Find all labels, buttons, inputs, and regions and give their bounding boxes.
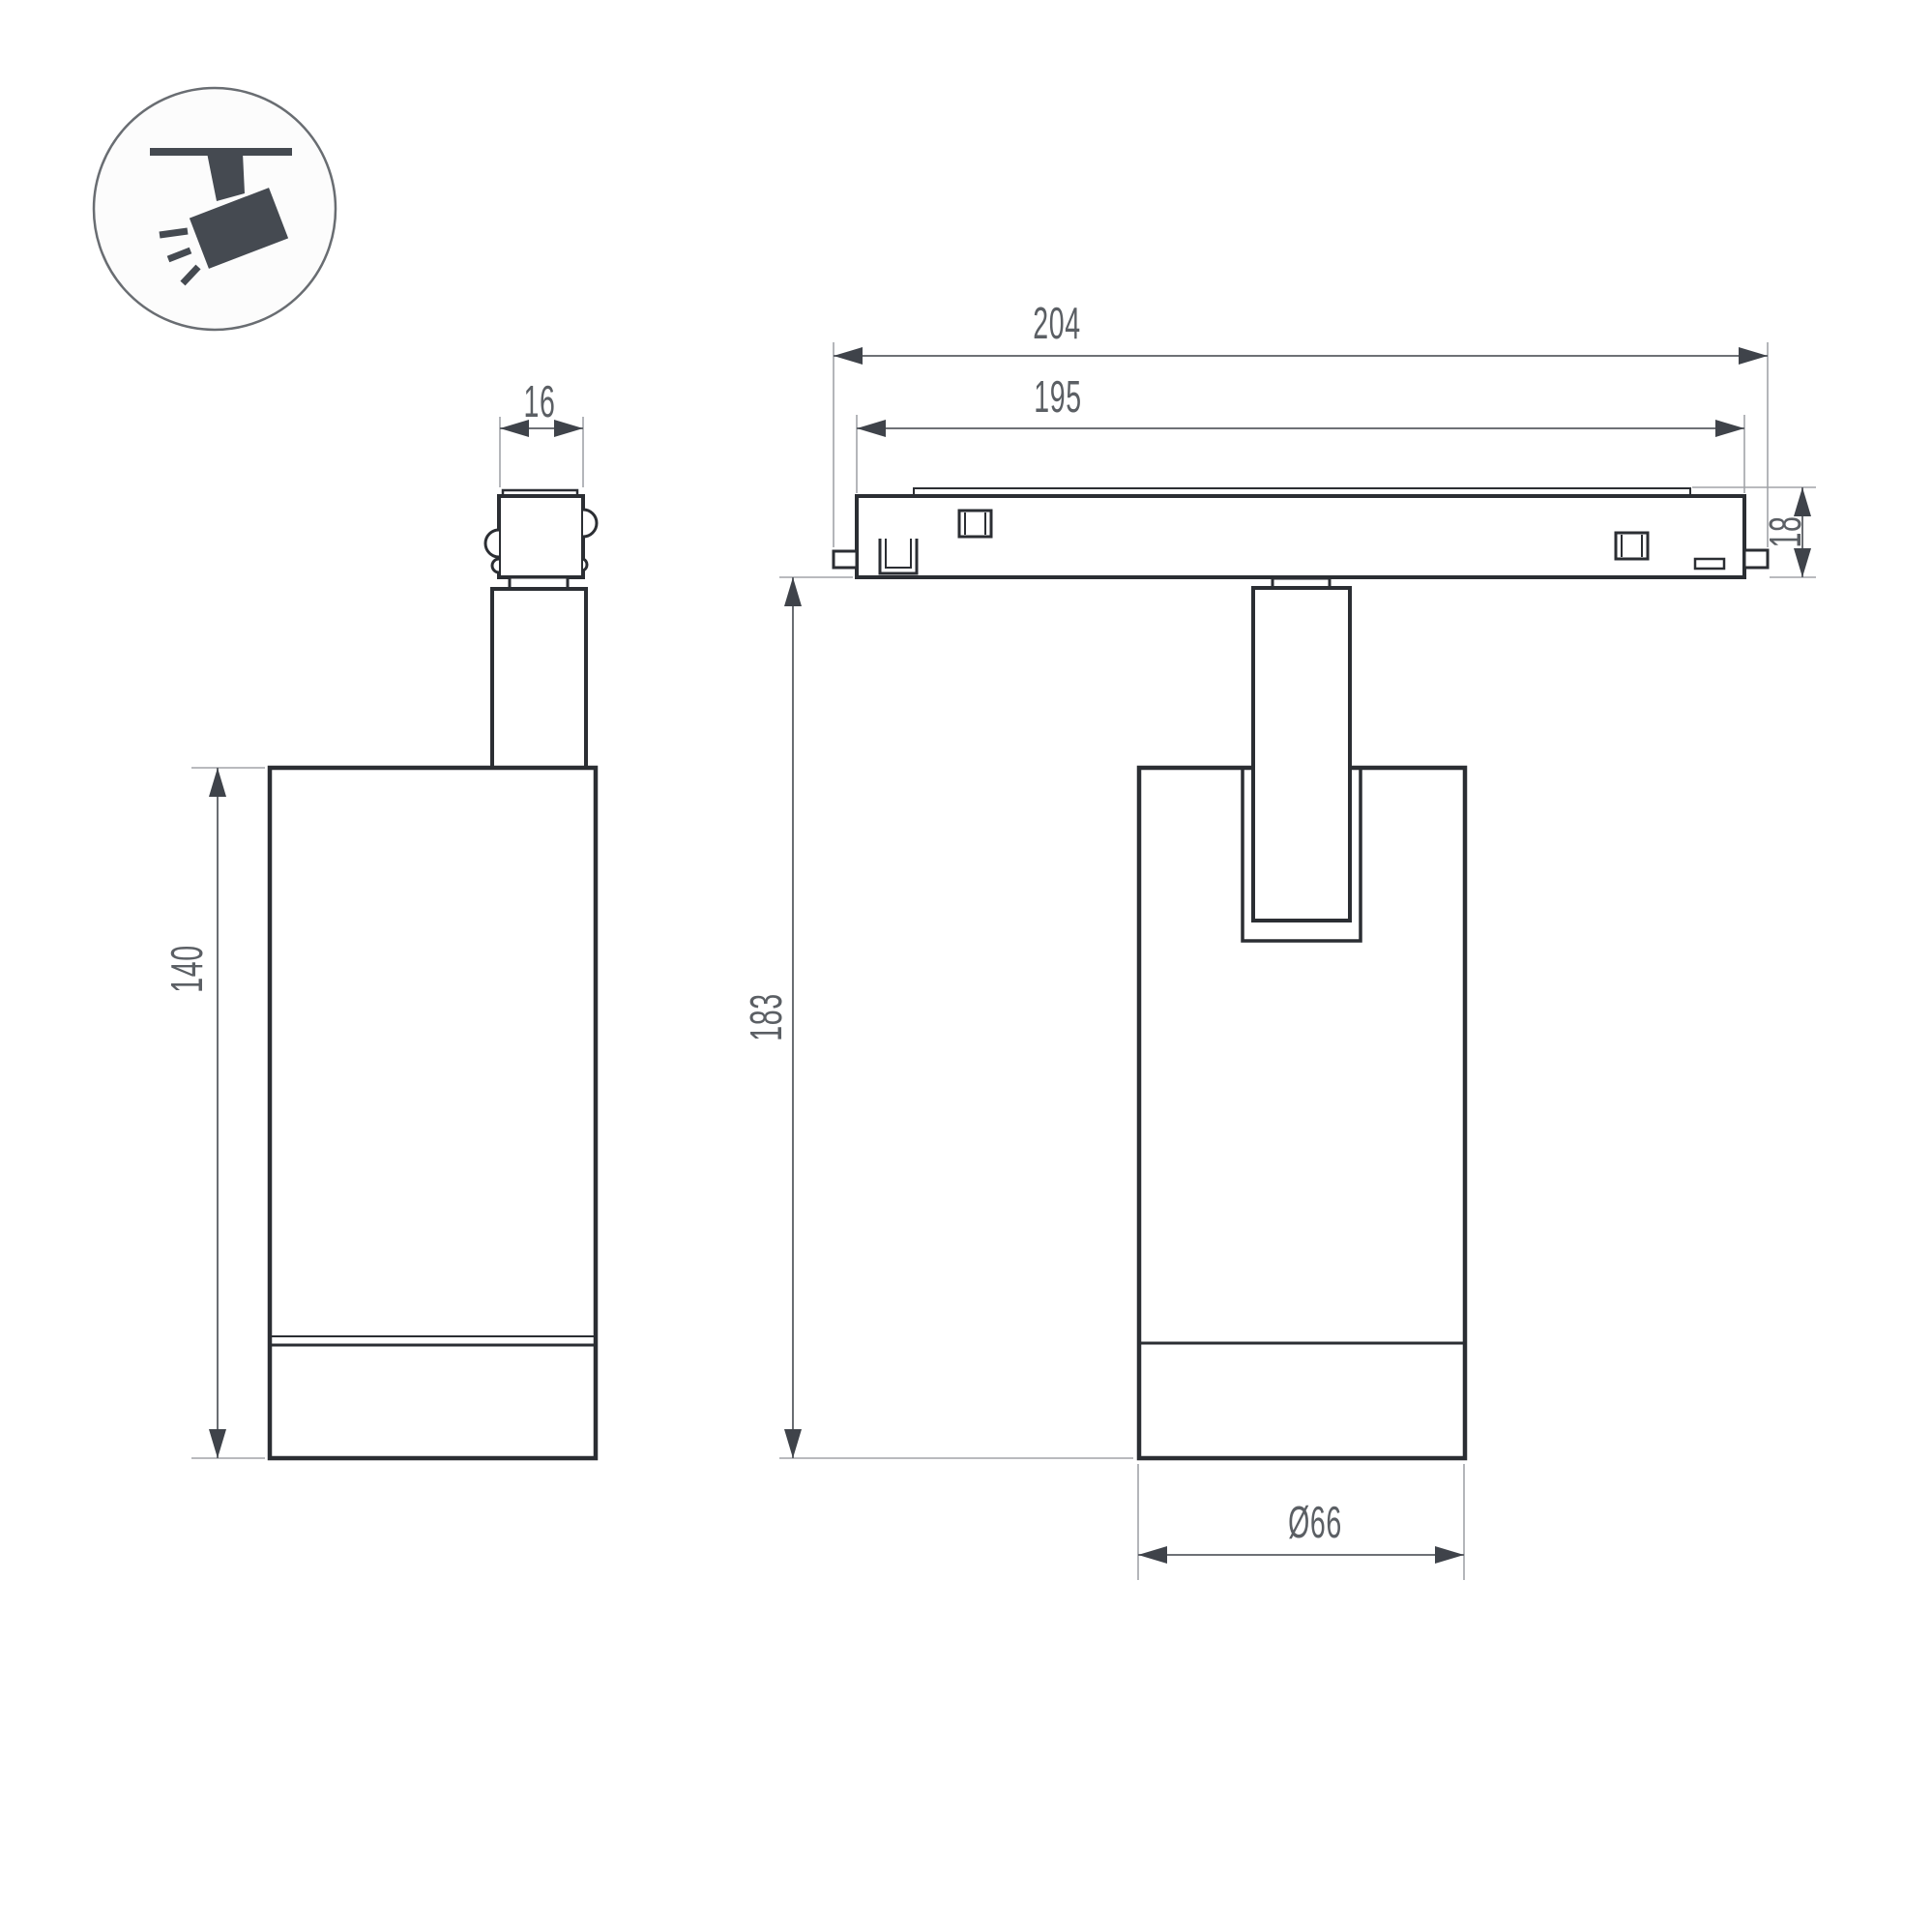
track-end-cap-left [834,551,857,568]
dimension-label: 204 [1033,299,1080,349]
dimension-label: Ø66 [1288,1498,1342,1548]
side-arm [492,589,586,768]
icon-light-ray [160,231,188,235]
side-body [270,768,596,1458]
arrowhead [857,420,886,437]
dimension-label: 183 [742,993,792,1040]
track-end-tab-right [1744,550,1768,568]
arrowhead [1138,1546,1167,1564]
dimension-diameter-66: Ø66 [1138,1464,1464,1580]
arrowhead [1715,420,1744,437]
adapter-ear-right [583,510,597,537]
arrowhead [1794,548,1811,577]
dimension-drawing: 16 204 195 18 140 18 [0,0,1932,1932]
dimension-195: 195 [857,372,1744,493]
adapter-knob-right [583,559,587,571]
arrowhead [209,768,226,797]
adapter-block [499,496,583,577]
track-slot [1695,559,1724,569]
dimension-183: 183 [742,577,1133,1458]
adapter-ear-left [485,530,499,557]
arrowhead [834,347,863,365]
dimension-16: 16 [500,377,583,487]
dimension-drawing-page: 16 204 195 18 140 18 [0,0,1932,1932]
arrowhead [784,577,802,606]
arrowhead [1794,487,1811,516]
adapter-knob-left [492,559,499,572]
dimension-140: 140 [162,768,265,1458]
track-connector-2 [1616,533,1648,559]
dimension-label: 18 [1761,516,1811,548]
front-view [834,488,1768,1458]
dimension-label: 140 [162,945,213,992]
front-arm [1253,588,1350,921]
dimension-label: 195 [1034,372,1081,423]
track-connector-1 [959,511,991,537]
arrowhead [1435,1546,1464,1564]
arrowhead [1739,347,1768,365]
track-spotlight-icon [94,88,336,330]
arrowhead [784,1429,802,1458]
side-view [270,490,597,1458]
dimension-label: 16 [524,377,556,427]
arrowhead [554,420,583,437]
arrowhead [209,1429,226,1458]
